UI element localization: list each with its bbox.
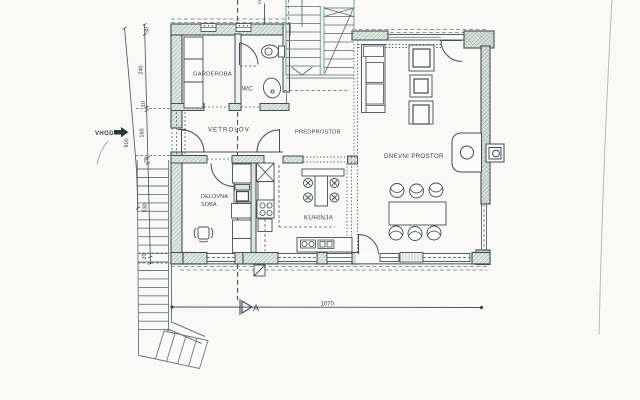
svg-text:30: 30	[145, 27, 151, 33]
svg-text:KUHINJA: KUHINJA	[304, 215, 334, 222]
svg-text:DELOVNA: DELOVNA	[201, 194, 228, 200]
svg-text:1070: 1070	[321, 302, 335, 308]
svg-text:VHOD: VHOD	[95, 131, 114, 137]
svg-text:2: 2	[258, 0, 261, 6]
svg-text:GARDEROBA: GARDEROBA	[193, 72, 232, 78]
svg-text:330: 330	[143, 203, 149, 212]
svg-text:10: 10	[141, 101, 147, 107]
svg-text:240: 240	[139, 65, 145, 74]
svg-text:20: 20	[142, 253, 148, 259]
svg-text:A: A	[253, 303, 259, 313]
svg-text:WC: WC	[242, 86, 253, 93]
svg-text:DNEVNI PROSTOR: DNEVNI PROSTOR	[384, 153, 444, 160]
svg-text:20: 20	[144, 157, 150, 163]
svg-text:SOBA: SOBA	[201, 202, 217, 208]
svg-text:160: 160	[140, 128, 146, 137]
svg-text:600: 600	[124, 138, 131, 148]
svg-text:VETROLOV: VETROLOV	[208, 127, 250, 134]
svg-text:PREDPROSTOR: PREDPROSTOR	[295, 130, 341, 136]
